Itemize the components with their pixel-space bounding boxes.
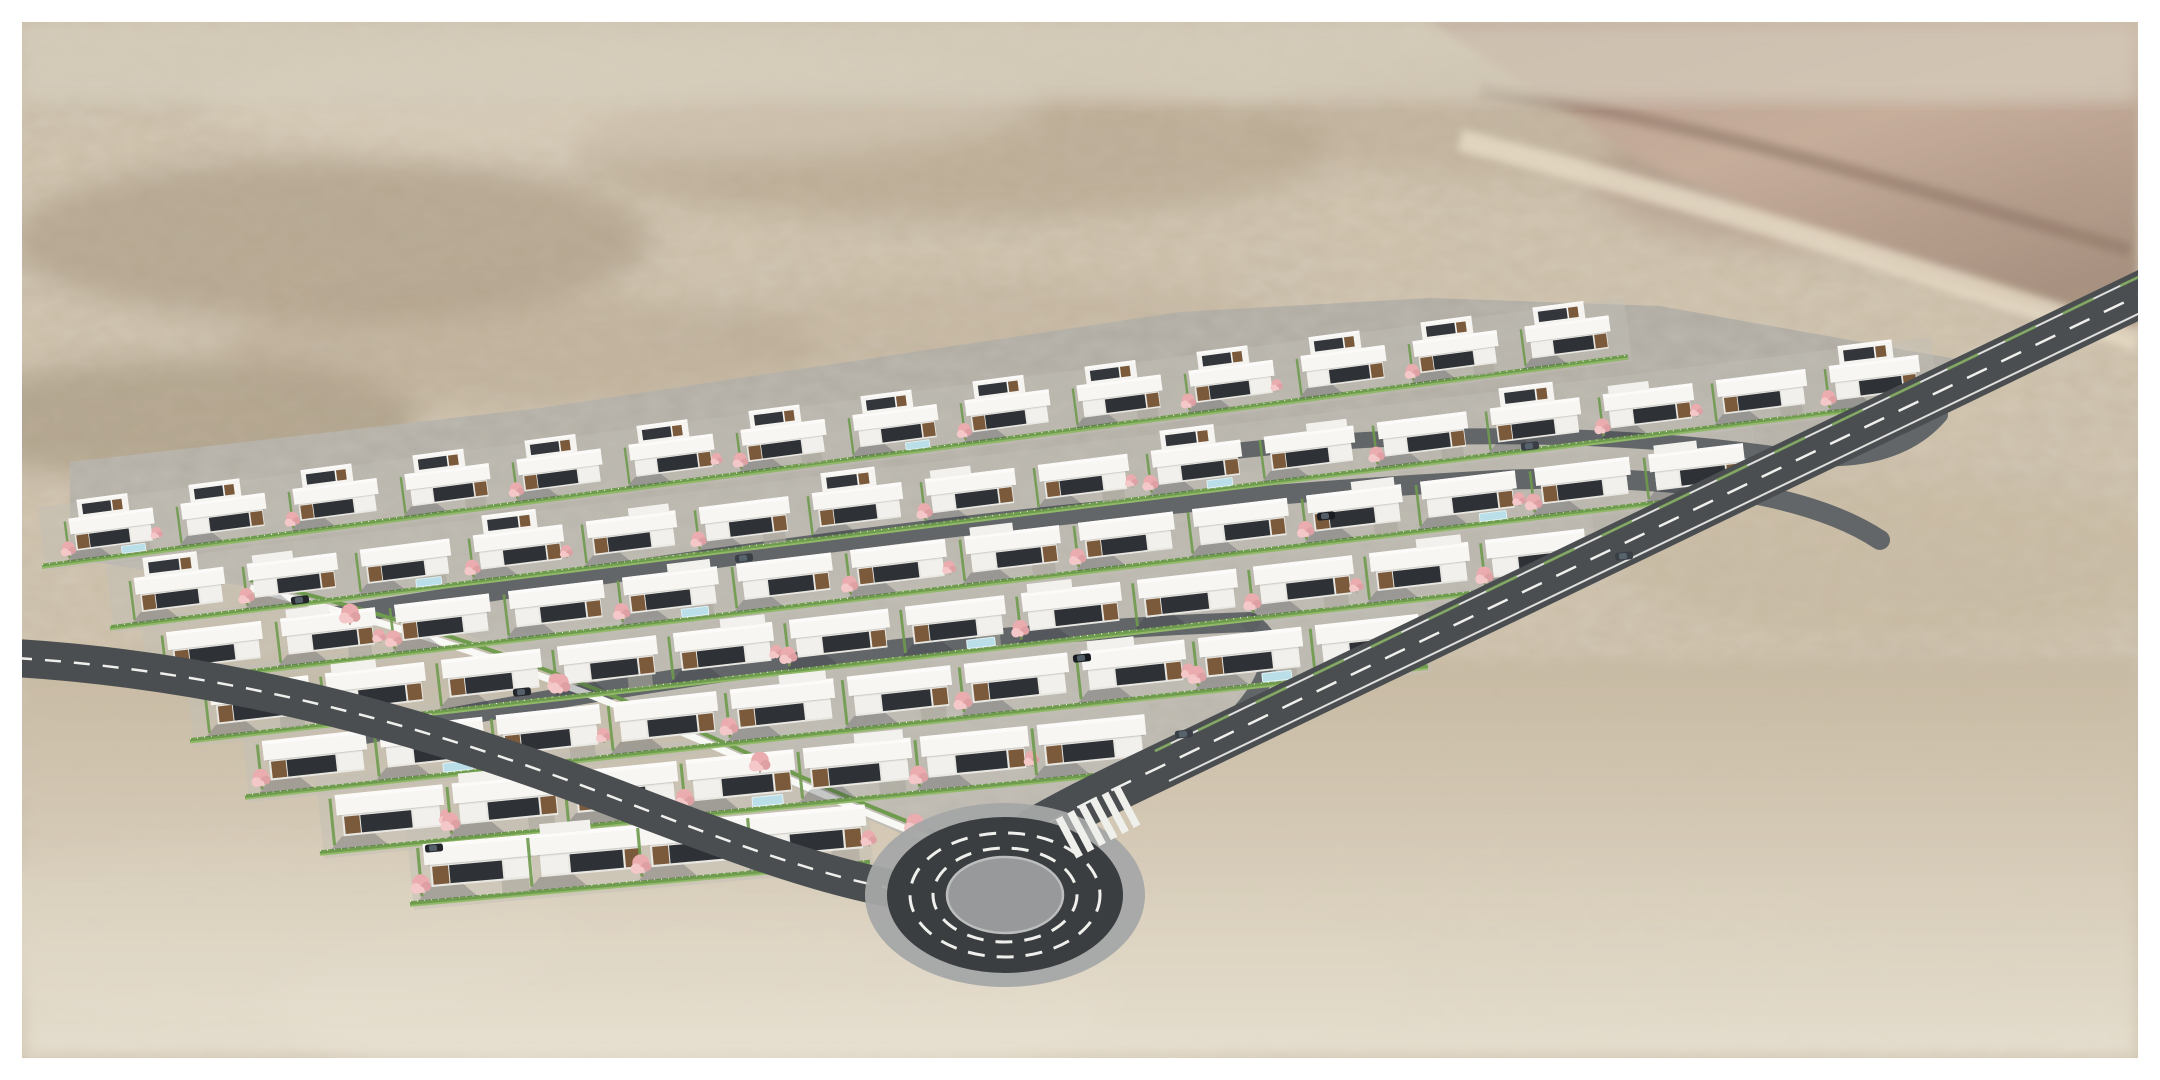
upper-wood	[1568, 307, 1579, 319]
white-pillar-wall	[287, 635, 312, 653]
white-pillar-wall	[705, 523, 729, 540]
wood-cladding	[1498, 425, 1512, 441]
wood-cladding	[922, 422, 936, 437]
frame-right	[2138, 0, 2160, 1080]
wood-cladding	[972, 415, 986, 430]
wood-cladding	[639, 656, 655, 673]
wood-cladding	[1724, 396, 1738, 412]
white-pillar-wall	[1083, 400, 1105, 416]
wood-cladding	[1046, 481, 1060, 497]
wood-cladding	[474, 481, 488, 496]
white-pillar-wall	[1147, 532, 1172, 550]
white-pillar-wall	[540, 855, 569, 875]
wood-cladding	[1420, 356, 1434, 371]
car-windshield	[1525, 443, 1534, 450]
white-pillar-wall	[1103, 473, 1127, 490]
car-windshield	[517, 689, 526, 696]
white-pillar-wall	[1375, 504, 1400, 522]
blossom	[347, 617, 354, 624]
wood-cladding	[1146, 598, 1162, 615]
white-pillar-wall	[1531, 341, 1553, 357]
wood-cladding	[932, 687, 948, 705]
upper-wood	[560, 440, 571, 452]
wood-cladding	[1677, 402, 1691, 418]
wood-cladding	[1008, 749, 1025, 768]
frame-bottom	[0, 1058, 2160, 1080]
upper-wood	[858, 472, 869, 484]
white-pillar-wall	[425, 558, 449, 575]
car-windshield	[295, 597, 304, 604]
wood-cladding	[739, 709, 755, 727]
wood-cladding	[1166, 662, 1182, 680]
white-pillar-wall	[235, 641, 260, 659]
white-pillar-wall	[977, 616, 1003, 635]
white-pillar-wall	[1383, 438, 1407, 455]
driveway	[501, 878, 530, 893]
wood-cladding	[773, 515, 787, 531]
white-pillar-wall	[927, 756, 955, 776]
white-pillar-wall	[1329, 445, 1353, 462]
car-windshield	[1321, 513, 1330, 520]
parked-car	[425, 843, 444, 853]
wood-cladding	[450, 678, 466, 695]
white-pillar-wall	[691, 586, 716, 604]
white-pillar-wall	[881, 760, 909, 780]
wood-cladding	[999, 487, 1013, 503]
white-pillar-wall	[743, 580, 768, 598]
wood-cladding	[631, 595, 646, 612]
wood-cladding	[368, 566, 382, 582]
white-pillar-wall	[1835, 381, 1859, 398]
white-pillar-wall	[1273, 649, 1300, 668]
wood-cladding	[1270, 518, 1285, 535]
wood-cladding	[76, 534, 90, 549]
wood-cladding	[250, 511, 264, 526]
wood-cladding	[698, 713, 714, 731]
wood-cladding	[321, 572, 335, 588]
upper-wood	[784, 410, 795, 422]
white-pillar-wall	[411, 488, 433, 504]
frame-top	[0, 0, 2160, 22]
upper-wood	[224, 484, 235, 496]
wood-cladding	[218, 705, 234, 722]
wood-cladding	[748, 445, 762, 460]
wood-cladding	[1594, 333, 1608, 348]
white-pillar-wall	[651, 529, 675, 546]
white-pillar-wall	[513, 670, 539, 689]
upper-wood	[336, 469, 347, 481]
upper-wood	[1875, 345, 1886, 357]
wood-cladding	[774, 772, 791, 791]
white-pillar-wall	[931, 494, 955, 511]
white-pillar-wall	[199, 586, 223, 603]
car-windshield	[1619, 553, 1628, 560]
white-pillar-wall	[1441, 563, 1467, 582]
white-pillar-wall	[620, 721, 647, 740]
wood-cladding	[547, 544, 561, 560]
white-pillar-wall	[1781, 388, 1805, 405]
white-pillar-wall	[1609, 410, 1633, 427]
wood-cladding	[1370, 363, 1384, 378]
roundabout-island	[947, 857, 1063, 933]
car-windshield	[1179, 731, 1188, 738]
upper-wood	[1008, 380, 1019, 392]
white-pillar-wall	[745, 643, 771, 662]
white-pillar-wall	[578, 466, 600, 482]
white-pillar-wall	[253, 579, 277, 596]
wood-cladding	[973, 683, 989, 701]
car-windshield	[1077, 655, 1086, 662]
wood-cladding	[594, 538, 608, 554]
horizon-haze	[22, 22, 2138, 102]
wood-cladding	[812, 768, 829, 787]
white-pillar-wall	[386, 746, 413, 765]
white-pillar-wall	[971, 553, 996, 571]
wood-cladding	[1046, 745, 1063, 764]
upper-wood	[1344, 336, 1355, 348]
white-pillar-wall	[459, 803, 487, 823]
white-pillar-wall	[805, 700, 832, 719]
wood-cladding	[914, 625, 930, 642]
wood-cladding	[844, 828, 861, 847]
white-pillar-wall	[854, 695, 881, 714]
upper-wood	[180, 557, 191, 569]
wood-cladding	[1335, 576, 1351, 593]
frame-left	[0, 0, 22, 1080]
white-pillar-wall	[1655, 471, 1680, 489]
white-pillar-wall	[919, 559, 944, 577]
wood-cladding	[1543, 485, 1558, 502]
upper-wood	[1232, 351, 1243, 363]
white-pillar-wall	[1555, 416, 1579, 433]
wood-cladding	[682, 651, 698, 668]
wood-cladding	[1042, 545, 1057, 562]
render-canvas	[0, 0, 2160, 1080]
white-pillar-wall	[802, 437, 824, 453]
white-pillar-wall	[693, 779, 721, 799]
wood-cladding	[142, 594, 156, 610]
white-pillar-wall	[1209, 590, 1235, 609]
upper-wood	[672, 425, 683, 437]
blossom	[557, 687, 564, 694]
wood-cladding	[1146, 393, 1160, 408]
wood-cladding	[524, 475, 538, 490]
wood-cladding	[540, 796, 557, 815]
wood-cladding	[586, 600, 601, 617]
white-pillar-wall	[859, 429, 881, 445]
white-pillar-wall	[463, 614, 488, 632]
white-pillar-wall	[1603, 477, 1628, 495]
white-pillar-wall	[413, 807, 441, 827]
white-pillar-wall	[1026, 407, 1048, 423]
wood-cladding	[271, 760, 287, 778]
wood-cladding	[1225, 459, 1239, 475]
white-pillar-wall	[1427, 498, 1452, 516]
white-pillar-wall	[479, 551, 503, 568]
wood-cladding	[814, 573, 829, 590]
white-pillar-wall	[337, 752, 364, 771]
white-pillar-wall	[571, 726, 598, 745]
upper-wood	[1120, 366, 1131, 378]
car-windshield	[429, 845, 437, 852]
white-pillar-wall	[130, 526, 152, 542]
upper-wood	[112, 499, 123, 511]
wood-cladding	[820, 509, 834, 525]
upper-wood	[1456, 321, 1467, 333]
wood-cladding	[1451, 431, 1465, 447]
wood-cladding	[1196, 386, 1210, 401]
upper-wood	[448, 454, 459, 466]
wood-cladding	[1207, 657, 1223, 675]
blossom	[757, 765, 764, 772]
white-pillar-wall	[1199, 526, 1224, 544]
wood-cladding	[859, 567, 874, 584]
wood-cladding	[358, 628, 373, 645]
white-pillar-wall	[877, 501, 901, 518]
wood-cladding	[1378, 571, 1394, 588]
wood-cladding	[407, 683, 423, 700]
white-pillar-wall	[515, 608, 540, 626]
white-pillar-wall	[1260, 584, 1286, 603]
wood-cladding	[344, 815, 361, 834]
white-pillar-wall	[635, 459, 657, 475]
wood-cladding	[871, 630, 887, 647]
white-pillar-wall	[796, 637, 822, 656]
car-windshield	[739, 555, 748, 562]
white-pillar-wall	[354, 496, 376, 512]
wood-cladding	[1103, 603, 1119, 620]
white-pillar-wall	[1039, 674, 1066, 693]
upper-wood	[519, 515, 530, 527]
upper-wood	[1536, 388, 1547, 400]
upper-wood	[1197, 430, 1208, 442]
wood-cladding	[403, 622, 418, 639]
wood-cladding	[1498, 491, 1513, 508]
white-pillar-wall	[1307, 370, 1329, 386]
wood-cladding	[300, 504, 314, 519]
wood-cladding	[1087, 540, 1102, 557]
wood-cladding	[1272, 453, 1286, 469]
white-pillar-wall	[1088, 669, 1115, 688]
white-pillar-wall	[1157, 466, 1181, 483]
wood-cladding	[698, 452, 712, 467]
white-pillar-wall	[1250, 378, 1272, 394]
wood-cladding	[432, 865, 449, 884]
white-pillar-wall	[1474, 348, 1496, 364]
white-pillar-wall	[187, 518, 209, 534]
upper-wood	[896, 395, 907, 407]
white-pillar-wall	[1028, 610, 1054, 629]
wood-cladding	[652, 846, 669, 865]
architectural-render: Aerial 3D architectural rendering of a r…	[0, 0, 2160, 1080]
